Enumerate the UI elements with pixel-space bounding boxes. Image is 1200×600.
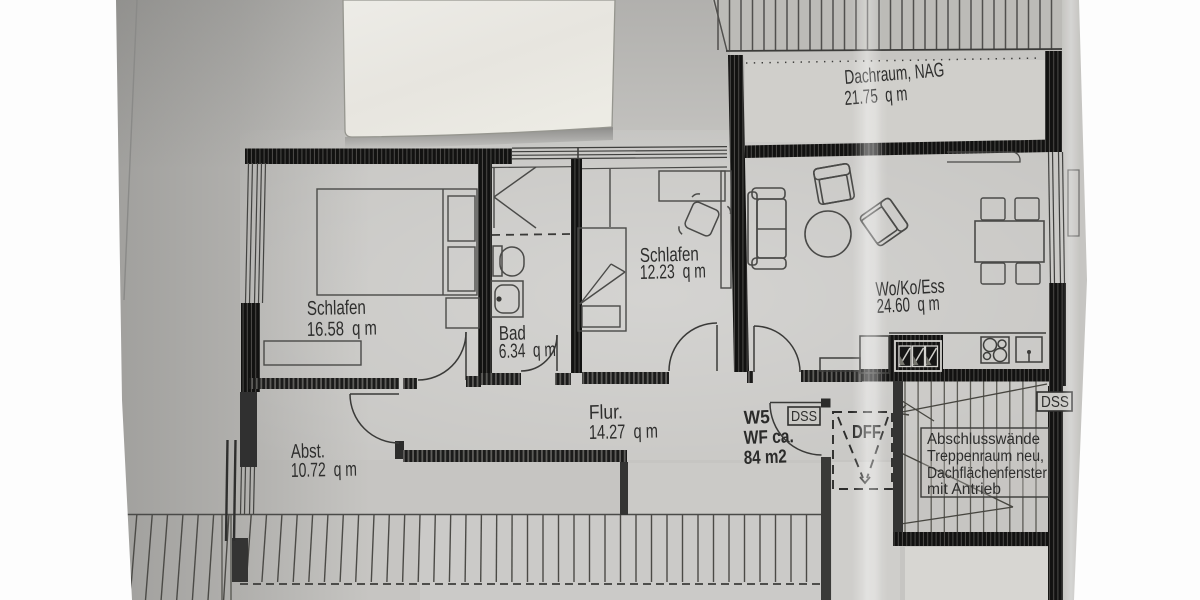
- svg-text:14.27 q m: 14.27 q m: [589, 421, 658, 444]
- svg-text:DSS: DSS: [791, 408, 817, 425]
- svg-text:Abschlusswände: Abschlusswände: [927, 431, 1040, 448]
- svg-text:Schlafen: Schlafen: [307, 297, 366, 320]
- svg-text:12.23 q m: 12.23 q m: [640, 260, 707, 284]
- svg-text:6.34 q m: 6.34 q m: [498, 339, 556, 363]
- svg-text:W5: W5: [743, 407, 770, 429]
- svg-text:mit Antrieb: mit Antrieb: [927, 481, 1001, 498]
- svg-text:16.58 q m: 16.58 q m: [307, 318, 377, 341]
- svg-text:Treppenraum neu,: Treppenraum neu,: [927, 448, 1044, 465]
- svg-text:Dachflächenfenster: Dachflächenfenster: [927, 465, 1047, 482]
- svg-text:10.72 q m: 10.72 q m: [291, 459, 357, 482]
- svg-text:WF ca.: WF ca.: [743, 426, 794, 449]
- svg-text:84 m2: 84 m2: [743, 447, 787, 469]
